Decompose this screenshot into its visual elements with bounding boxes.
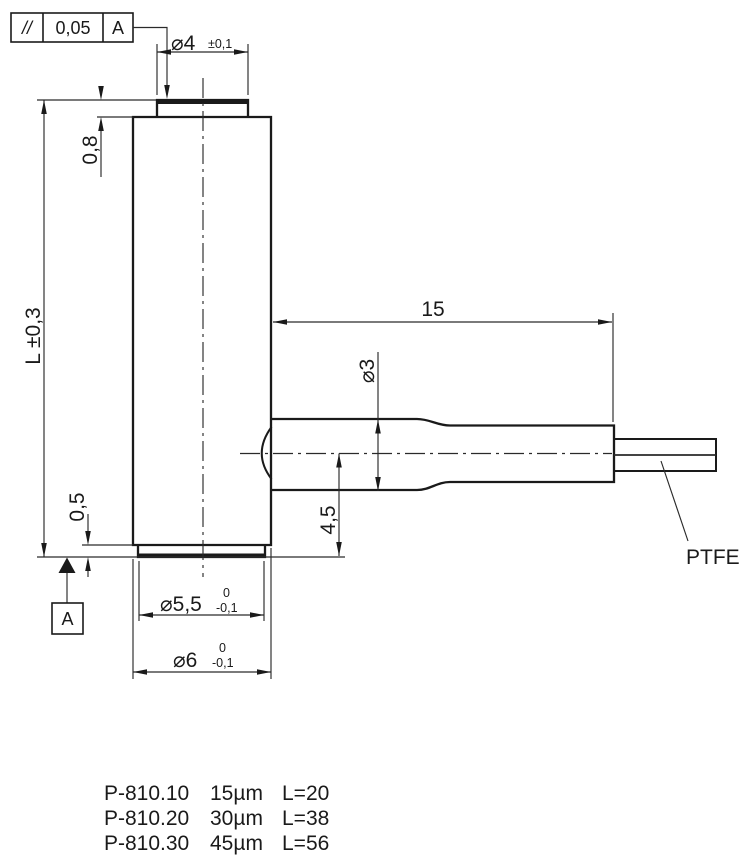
dim-bottom-cap-thickness: 0,5: [37, 492, 345, 577]
body-rectangle: [133, 117, 271, 545]
model-name: P-810.10: [104, 782, 189, 805]
arrow-upper-icon: [85, 531, 91, 545]
dim-text: 0,8: [79, 135, 102, 164]
drawing-canvas: // 0,05 A A ⌀4 ±0,1 0,8 L ±0,3: [0, 0, 750, 861]
dim-top-cap-thickness: 0,8: [37, 86, 156, 177]
model-length: L=38: [282, 807, 329, 830]
technical-drawing-page: // 0,05 A A ⌀4 ±0,1 0,8 L ±0,3: [0, 0, 750, 861]
feature-control-frame: // 0,05 A: [11, 13, 170, 99]
leader-line: [661, 461, 688, 541]
datum-reference: A: [112, 18, 124, 38]
dim-text: 15: [421, 298, 444, 321]
actuator-body-outline: [133, 100, 716, 557]
arrow-lower-icon: [85, 557, 91, 571]
model-travel: 45µm: [210, 832, 263, 855]
model-length: L=56: [282, 832, 329, 855]
dim-text: ⌀6: [173, 649, 197, 672]
dim-sleeve-length: 15: [273, 298, 613, 422]
cable-callout: PTFE: [661, 461, 740, 569]
arrow-lower-icon: [98, 117, 104, 131]
dim-tolerance-text: ±0,1: [208, 37, 232, 51]
dim-text: ⌀5,5: [160, 593, 202, 616]
tolerance-value: 0,05: [55, 18, 90, 38]
dim-sleeve-diameter: ⌀3: [356, 352, 381, 491]
tol-lower-text: -0,1: [212, 656, 234, 670]
dim-text: 4,5: [317, 505, 340, 534]
dim-sleeve-axis-height: 4,5: [317, 454, 342, 557]
arrow-upper-icon: [98, 86, 104, 100]
model-row: P-810.20 30µm L=38: [104, 807, 329, 830]
datum-flag: A: [52, 558, 83, 635]
model-name: P-810.20: [104, 807, 189, 830]
model-row: P-810.10 15µm L=20: [104, 782, 329, 805]
model-table: P-810.10 15µm L=20 P-810.20 30µm L=38 P-…: [104, 782, 329, 855]
dim-body-length: L ±0,3: [22, 100, 47, 557]
dim-bottom-inner-diameter: ⌀5,5 0 -0,1: [139, 561, 264, 621]
dim-text: L ±0,3: [22, 307, 45, 364]
datum-label: A: [61, 609, 73, 629]
tol-upper-text: 0: [223, 586, 230, 600]
frame-leader-line: [133, 28, 167, 87]
dim-text: ⌀3: [356, 359, 379, 383]
frame-leader-arrow-icon: [164, 85, 170, 99]
dim-text: ⌀4: [171, 32, 196, 55]
parallelism-symbol: //: [20, 18, 34, 38]
tol-upper-text: 0: [219, 641, 226, 655]
model-travel: 15µm: [210, 782, 263, 805]
model-length: L=20: [282, 782, 329, 805]
model-travel: 30µm: [210, 807, 263, 830]
cable-material-label: PTFE: [686, 546, 740, 569]
model-row: P-810.30 45µm L=56: [104, 832, 329, 855]
cable-sleeve: [271, 419, 614, 490]
datum-triangle-icon: [59, 558, 76, 574]
tol-lower-text: -0,1: [216, 601, 238, 615]
model-name: P-810.30: [104, 832, 189, 855]
dim-text: 0,5: [66, 492, 89, 521]
